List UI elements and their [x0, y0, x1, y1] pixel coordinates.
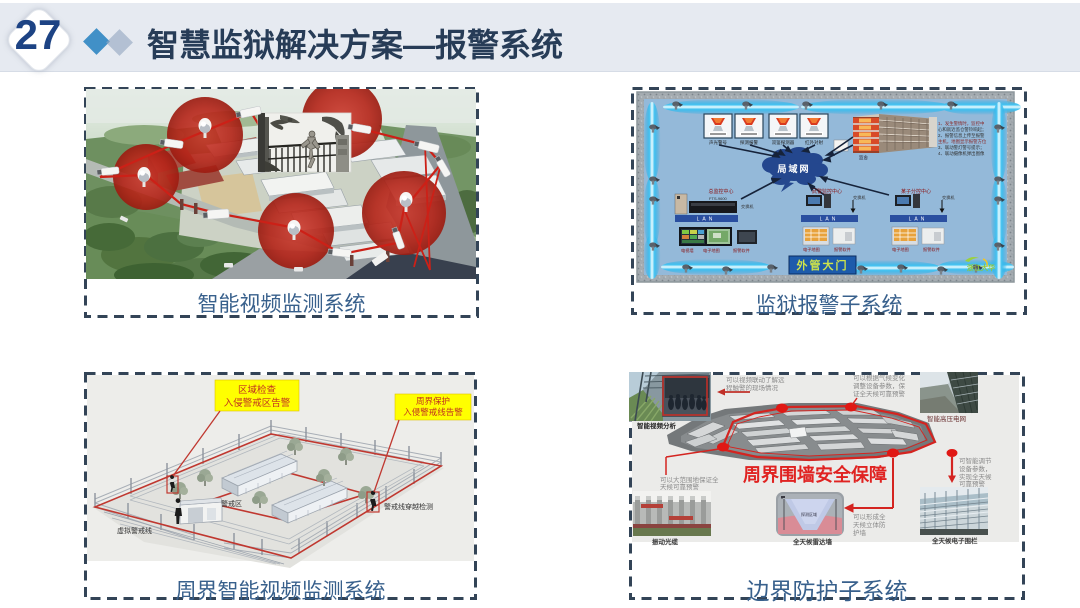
- svg-text:局域网: 局域网: [777, 163, 810, 174]
- svg-text:证全天候可靠预警: 证全天候可靠预警: [853, 389, 906, 398]
- svg-text:护墙: 护墙: [853, 528, 867, 537]
- svg-text:可以大范围地保证全: 可以大范围地保证全: [660, 475, 719, 484]
- svg-text:1、发生警情时，监控中: 1、发生警情时，监控中: [938, 120, 984, 127]
- svg-text:总监控中心: 总监控中心: [708, 188, 733, 195]
- svg-text:2、报警信息上传至报警: 2、报警信息上传至报警: [938, 132, 985, 139]
- svg-text:区域检查: 区域检查: [238, 384, 277, 396]
- svg-text:LAN: LAN: [697, 217, 716, 223]
- svg-text:振动光缆: 振动光缆: [652, 537, 679, 546]
- svg-text:声光警号: 声光警号: [709, 139, 727, 146]
- svg-text:交换机: 交换机: [853, 194, 866, 201]
- svg-text:可以根据气候变化: 可以根据气候变化: [853, 373, 906, 382]
- svg-text:交换机: 交换机: [741, 203, 754, 210]
- svg-text:LAN: LAN: [909, 217, 928, 223]
- svg-text:周界围墙安全保障: 周界围墙安全保障: [743, 464, 887, 485]
- svg-text:程触警的现场情况: 程触警的现场情况: [726, 383, 779, 392]
- svg-text:全天候雷达墙: 全天候雷达墙: [792, 537, 833, 546]
- svg-text:可以形成全: 可以形成全: [853, 512, 886, 521]
- svg-text:智能高压电网: 智能高压电网: [927, 414, 966, 423]
- svg-text:全天候电子围栏: 全天候电子围栏: [931, 536, 978, 545]
- svg-text:交换机: 交换机: [942, 194, 955, 201]
- svg-text:FTS-9600: FTS-9600: [709, 196, 728, 201]
- svg-text:主机，地图显示报警方位: 主机，地图显示报警方位: [938, 138, 987, 145]
- svg-text:天候立体防: 天候立体防: [853, 520, 886, 529]
- svg-text:探测区域: 探测区域: [801, 511, 817, 517]
- svg-text:入侵警戒线告警: 入侵警戒线告警: [403, 407, 463, 417]
- svg-text:电子地图: 电子地图: [703, 247, 720, 254]
- svg-text:智能视频分析: 智能视频分析: [637, 421, 677, 430]
- svg-text:4、联动摄像机弹出图像: 4、联动摄像机弹出图像: [938, 150, 985, 157]
- svg-text:实现全天候: 实现全天候: [959, 472, 992, 481]
- svg-text:探测报警: 探测报警: [740, 139, 758, 146]
- svg-text:可以视频联动了解远: 可以视频联动了解远: [726, 375, 785, 384]
- svg-text:电子地图: 电子地图: [803, 246, 820, 253]
- svg-text:设备参数，: 设备参数，: [959, 464, 992, 473]
- svg-text:警戒线穿越检测: 警戒线穿越检测: [384, 502, 433, 511]
- svg-text:某子分控中心: 某子分控中心: [901, 188, 931, 195]
- svg-text:监舍: 监舍: [859, 154, 868, 161]
- svg-text:外管大门: 外管大门: [796, 258, 849, 272]
- svg-text:可靠预警: 可靠预警: [959, 479, 986, 488]
- svg-text:浙江大华: 浙江大华: [967, 263, 995, 272]
- svg-text:心和就近监仓警铃响起；: 心和就近监仓警铃响起；: [938, 126, 986, 133]
- svg-text:电视墙: 电视墙: [681, 247, 694, 254]
- svg-text:入侵警戒区告警: 入侵警戒区告警: [224, 397, 291, 409]
- svg-text:报警软件: 报警软件: [923, 246, 940, 253]
- svg-text:天候可靠预警: 天候可靠预警: [660, 482, 700, 491]
- svg-text:报警软件: 报警软件: [834, 246, 851, 253]
- svg-text:调整设备参数，保: 调整设备参数，保: [853, 381, 906, 390]
- svg-text:电子地图: 电子地图: [892, 246, 909, 253]
- svg-text:报警软件: 报警软件: [733, 247, 750, 254]
- svg-text:武警监控中心: 武警监控中心: [812, 188, 842, 195]
- svg-text:LAN: LAN: [820, 217, 839, 223]
- svg-text:3、联动警灯警号提示；: 3、联动警灯警号提示；: [938, 144, 984, 151]
- svg-text:虚拟警戒线: 虚拟警戒线: [117, 526, 152, 535]
- svg-text:可智能调节: 可智能调节: [959, 456, 992, 465]
- svg-text:周界保护: 周界保护: [416, 396, 450, 406]
- svg-text:警戒区: 警戒区: [221, 499, 242, 508]
